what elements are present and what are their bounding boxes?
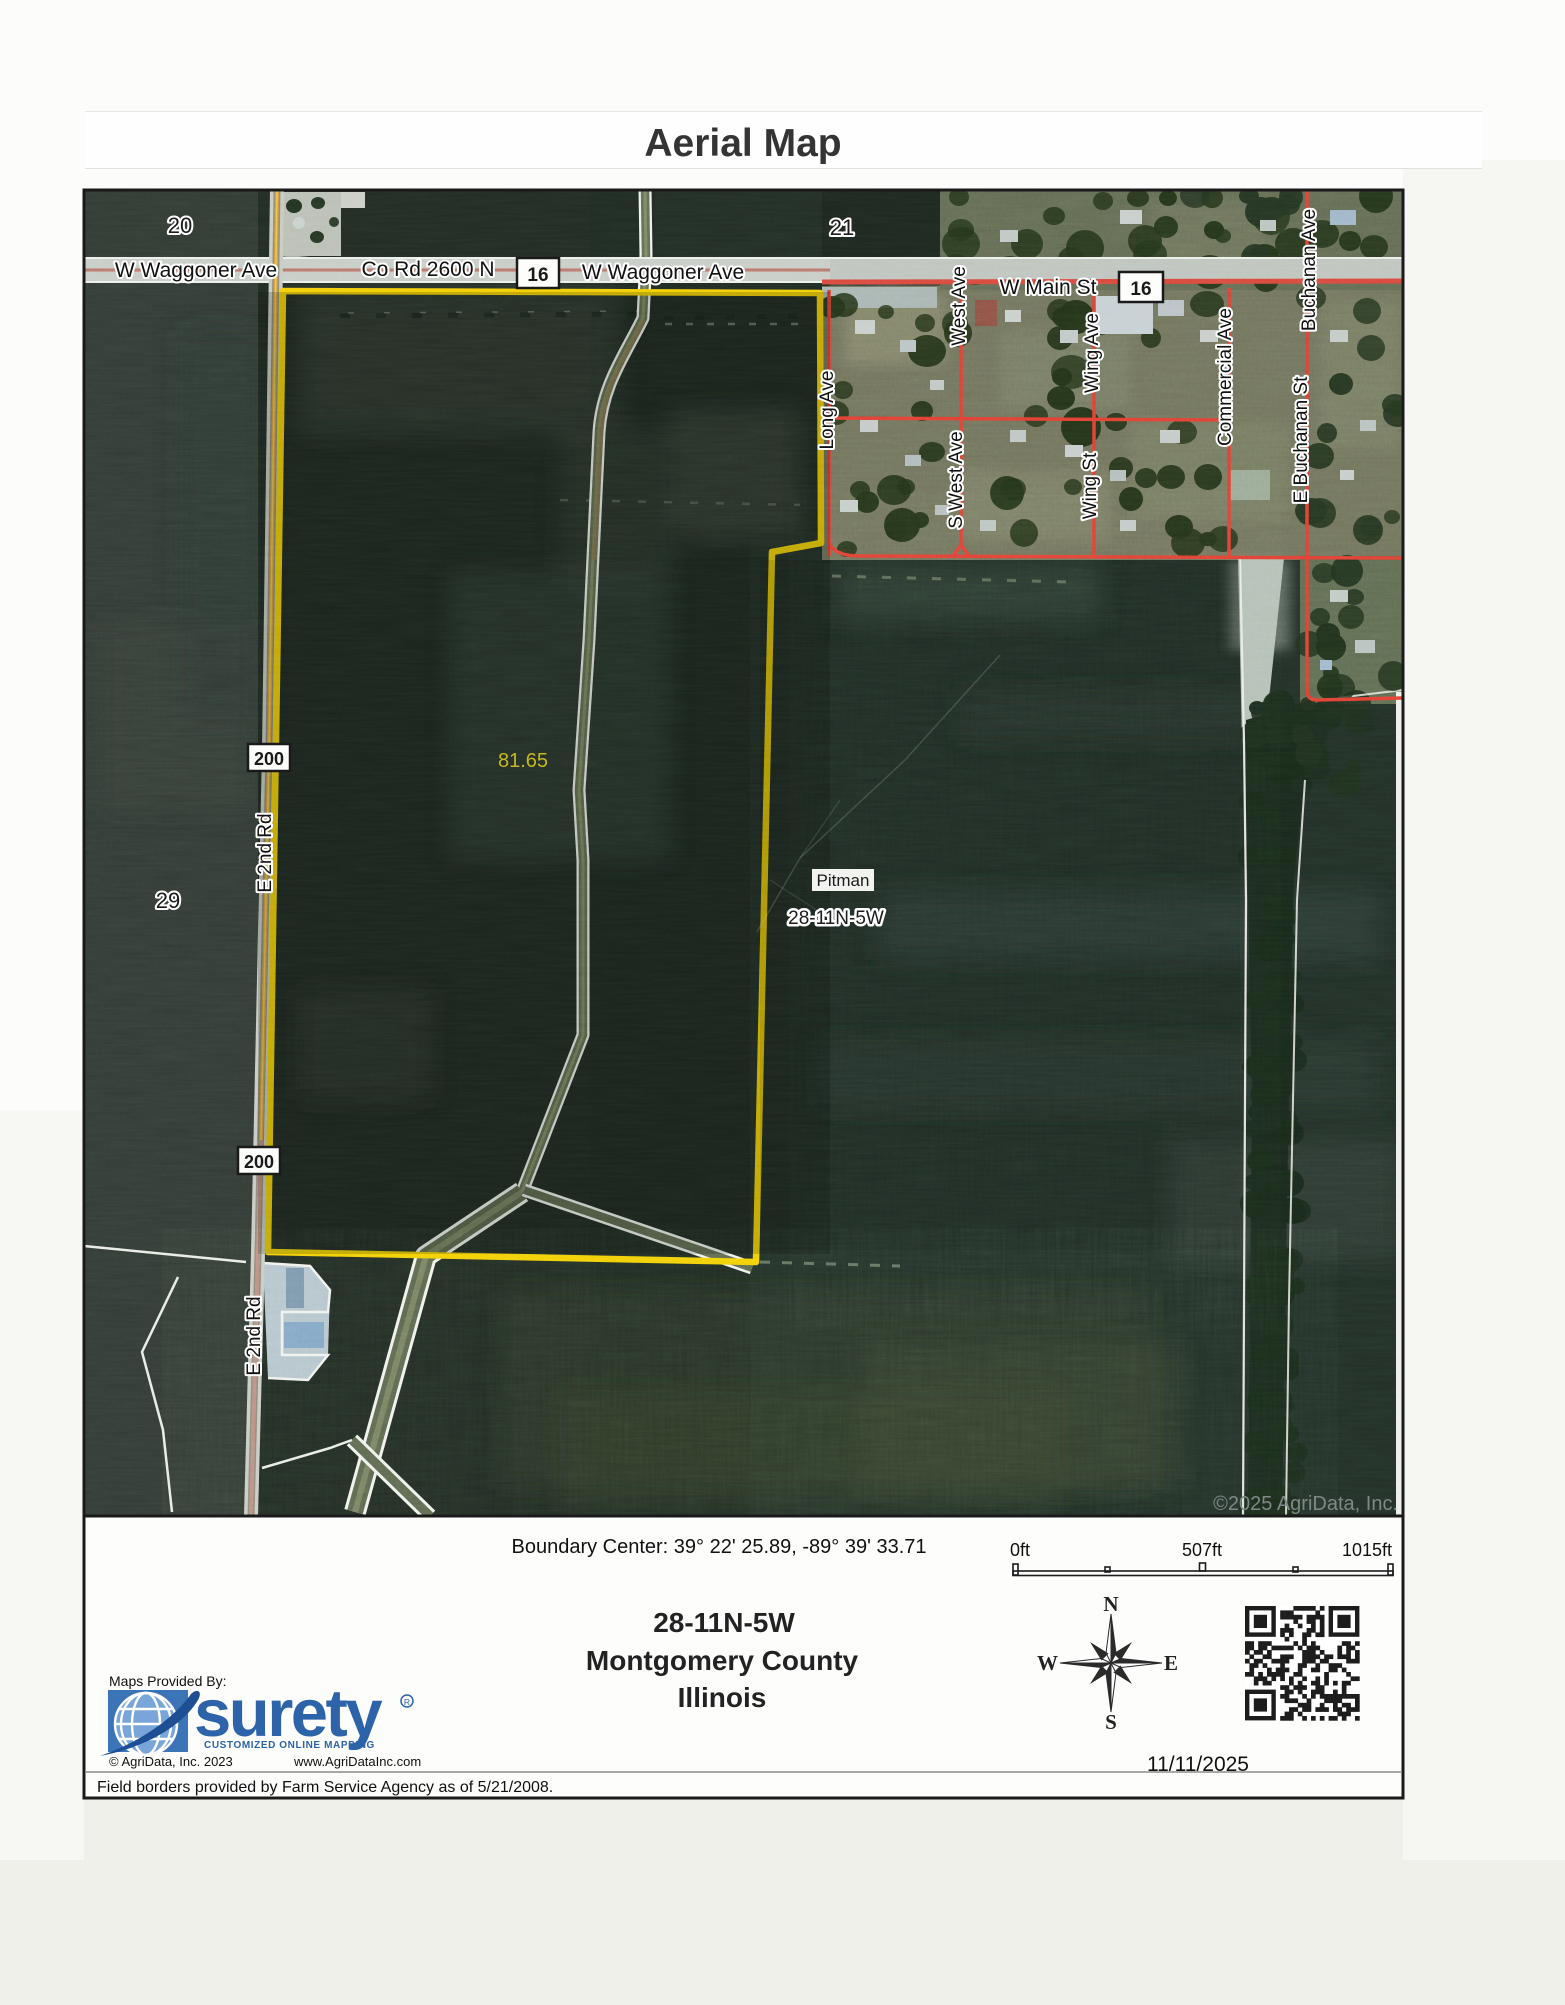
svg-text:E Buchanan St: E Buchanan St — [1291, 376, 1312, 503]
svg-text:W Main St: W Main St — [1000, 276, 1097, 299]
svg-text:Field borders provided by Farm: Field borders provided by Farm Service A… — [97, 1779, 553, 1796]
svg-text:0ft: 0ft — [1010, 1540, 1030, 1560]
svg-text:Pitman: Pitman — [817, 871, 870, 890]
svg-text:28-11N-5W: 28-11N-5W — [653, 1607, 795, 1638]
svg-text:W Waggoner Ave: W Waggoner Ave — [582, 261, 744, 284]
svg-text:Boundary Center: 39° 22' 25.89: Boundary Center: 39° 22' 25.89, -89° 39'… — [511, 1536, 926, 1558]
svg-text:16: 16 — [527, 265, 548, 286]
svg-text:Wing Ave: Wing Ave — [1082, 313, 1103, 393]
svg-text:16: 16 — [1130, 279, 1151, 300]
svg-text:11/11/2025: 11/11/2025 — [1147, 1753, 1249, 1776]
svg-text:© AgriData, Inc. 2023: © AgriData, Inc. 2023 — [109, 1754, 233, 1769]
svg-text:S West Ave: S West Ave — [946, 431, 967, 529]
svg-text:Montgomery County: Montgomery County — [586, 1645, 859, 1676]
svg-text:20: 20 — [168, 213, 192, 238]
svg-text:E 2nd Rd: E 2nd Rd — [244, 1296, 265, 1375]
svg-text:200: 200 — [254, 749, 284, 769]
svg-text:Co Rd 2600 N: Co Rd 2600 N — [361, 258, 494, 281]
svg-text:R: R — [404, 1697, 410, 1707]
svg-text:N: N — [1103, 1592, 1118, 1616]
svg-text:S: S — [1105, 1710, 1117, 1734]
svg-text:W Waggoner Ave: W Waggoner Ave — [115, 259, 277, 282]
svg-text:29: 29 — [156, 888, 180, 913]
svg-text:21: 21 — [830, 215, 854, 240]
svg-text:West Ave: West Ave — [949, 266, 970, 346]
svg-text:E: E — [1164, 1651, 1178, 1675]
svg-text:©2025 AgriData, Inc.: ©2025 AgriData, Inc. — [1213, 1493, 1398, 1515]
svg-text:www.AgriDataInc.com: www.AgriDataInc.com — [293, 1754, 421, 1769]
svg-text:Commercial Ave: Commercial Ave — [1215, 308, 1236, 446]
svg-text:E 2nd Rd: E 2nd Rd — [255, 813, 276, 892]
svg-text:Aerial Map: Aerial Map — [644, 122, 841, 165]
svg-text:Buchanan Ave: Buchanan Ave — [1299, 209, 1320, 331]
svg-text:Long Ave: Long Ave — [817, 371, 838, 450]
svg-text:28-11N-5W: 28-11N-5W — [788, 908, 884, 929]
svg-text:Illinois: Illinois — [678, 1682, 767, 1713]
svg-text:CUSTOMIZED ONLINE MAPPING: CUSTOMIZED ONLINE MAPPING — [204, 1740, 375, 1751]
svg-text:W: W — [1037, 1651, 1058, 1675]
svg-text:507ft: 507ft — [1182, 1540, 1222, 1560]
svg-text:1015ft: 1015ft — [1342, 1540, 1392, 1560]
svg-text:81.65: 81.65 — [498, 750, 548, 772]
svg-text:Wing St: Wing St — [1080, 452, 1101, 519]
svg-text:200: 200 — [244, 1152, 274, 1172]
